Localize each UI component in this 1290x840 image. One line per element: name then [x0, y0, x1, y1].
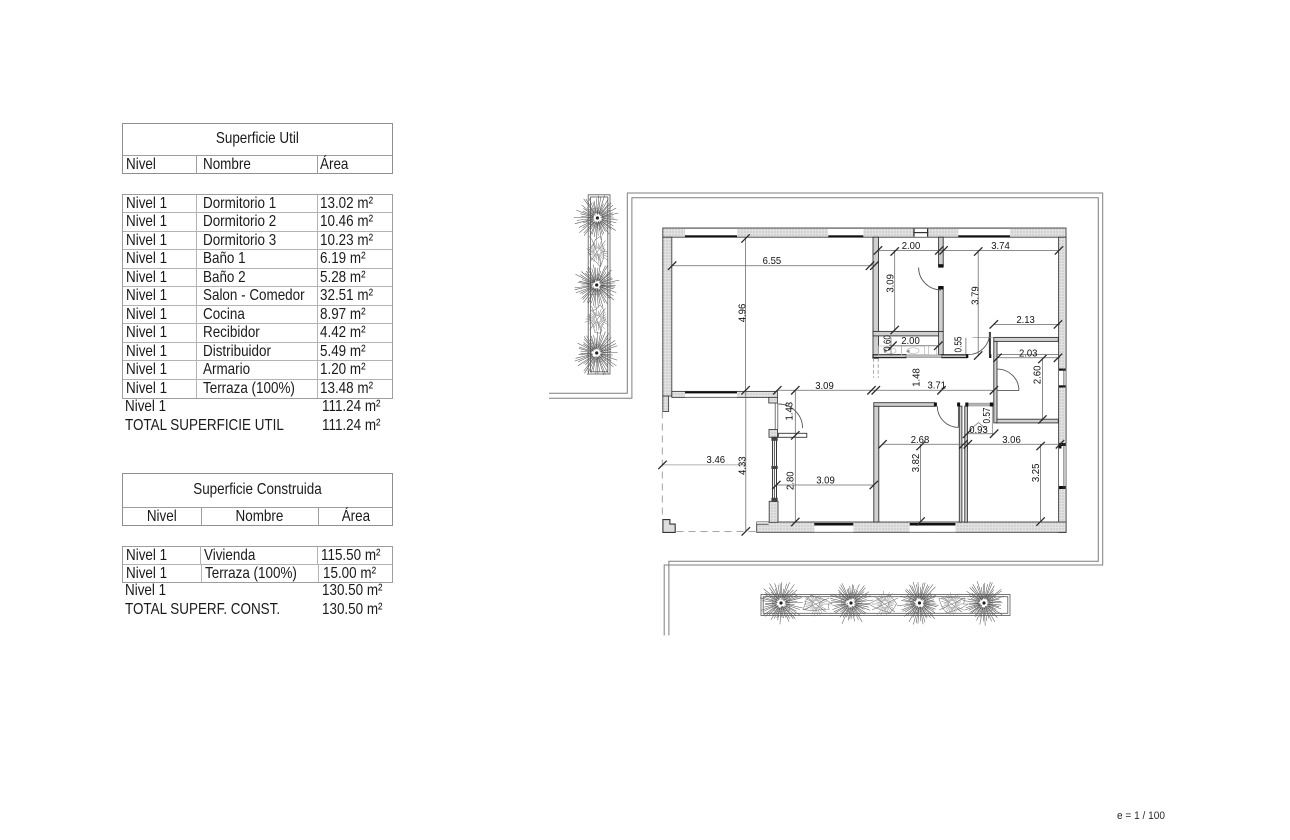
svg-text:2.80: 2.80: [785, 471, 797, 490]
svg-text:3.82: 3.82: [910, 454, 922, 473]
svg-text:2.60: 2.60: [1032, 366, 1044, 385]
svg-text:6.55: 6.55: [763, 255, 782, 267]
svg-text:3.09: 3.09: [816, 475, 835, 487]
svg-text:3.46: 3.46: [707, 454, 726, 466]
svg-text:4.33: 4.33: [737, 456, 749, 475]
svg-text:2.68: 2.68: [911, 434, 930, 446]
svg-text:0.93: 0.93: [969, 424, 988, 436]
svg-text:3.09: 3.09: [815, 380, 834, 392]
svg-text:0.55: 0.55: [953, 336, 965, 352]
svg-text:0.60: 0.60: [882, 335, 894, 351]
svg-text:0.57: 0.57: [981, 407, 993, 423]
svg-text:3.74: 3.74: [991, 240, 1010, 252]
svg-text:1.48: 1.48: [911, 368, 923, 387]
svg-text:2.13: 2.13: [1016, 314, 1035, 326]
svg-text:4.96: 4.96: [737, 304, 749, 323]
svg-text:2.00: 2.00: [901, 335, 920, 347]
svg-text:2.03: 2.03: [1019, 347, 1038, 359]
svg-text:3.09: 3.09: [884, 274, 896, 293]
svg-text:3.79: 3.79: [970, 286, 982, 305]
svg-text:e = 1 / 100: e = 1 / 100: [1117, 810, 1165, 822]
svg-text:3.06: 3.06: [1002, 434, 1021, 446]
svg-text:3.25: 3.25: [1030, 464, 1042, 483]
svg-text:1.43: 1.43: [783, 402, 795, 421]
svg-text:3.71: 3.71: [927, 380, 946, 392]
svg-text:2.00: 2.00: [902, 240, 921, 252]
